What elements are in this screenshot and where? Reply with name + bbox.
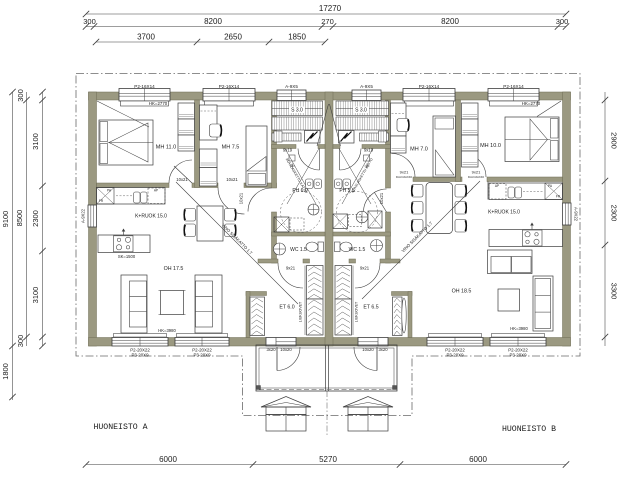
svg-text:WC 1.5: WC 1.5 <box>290 247 307 253</box>
svg-text:10x21: 10x21 <box>226 177 238 182</box>
svg-text:10x20: 10x20 <box>362 347 374 352</box>
svg-text:SK=1500: SK=1500 <box>118 254 136 259</box>
svg-text:P3-20X9: P3-20X9 <box>446 353 464 358</box>
svg-text:300: 300 <box>16 89 25 102</box>
svg-text:OH 17.5: OH 17.5 <box>164 266 184 272</box>
svg-text:MH 7.0: MH 7.0 <box>410 147 428 153</box>
svg-text:HK=3980: HK=3980 <box>510 326 528 331</box>
svg-text:8200: 8200 <box>204 17 222 26</box>
svg-text:P2-16X14: P2-16X14 <box>219 84 240 89</box>
svg-text:P3-20X9: P3-20X9 <box>509 353 527 358</box>
svg-text:S 3.0: S 3.0 <box>291 108 303 114</box>
svg-text:1850: 1850 <box>288 33 306 42</box>
svg-text:1800: 1800 <box>1 363 10 380</box>
svg-text:A-9X22: A-9X22 <box>574 207 579 222</box>
svg-text:KULKUAUKKO: KULKUAUKKO <box>468 176 484 179</box>
svg-text:P3-20X9: P3-20X9 <box>131 353 149 358</box>
svg-text:2900: 2900 <box>610 132 619 149</box>
svg-text:10x21: 10x21 <box>176 177 188 182</box>
svg-text:KULKUAUKKO: KULKUAUKKO <box>396 176 412 179</box>
svg-text:9x19: 9x19 <box>283 148 293 153</box>
svg-text:3x20: 3x20 <box>266 347 276 352</box>
svg-text:9x21: 9x21 <box>360 266 370 271</box>
svg-text:LIUKUOVET: LIUKUOVET <box>299 301 303 322</box>
svg-text:LIUKUOVET: LIUKUOVET <box>355 301 359 322</box>
svg-text:2650: 2650 <box>224 33 242 42</box>
svg-text:9x21: 9x21 <box>286 266 296 271</box>
svg-text:HK=2770: HK=2770 <box>522 101 541 106</box>
svg-text:A-9X22: A-9X22 <box>81 208 86 223</box>
svg-text:300: 300 <box>556 17 569 26</box>
svg-text:P2-16X14: P2-16X14 <box>134 84 155 89</box>
svg-text:P2-16X14: P2-16X14 <box>503 84 524 89</box>
svg-text:FR: FR <box>556 195 561 199</box>
svg-text:PH 5.5: PH 5.5 <box>339 188 355 194</box>
svg-text:3x20: 3x20 <box>378 347 388 352</box>
svg-text:2300: 2300 <box>610 205 619 222</box>
svg-text:P3-20X9: P3-20X9 <box>193 353 211 358</box>
svg-text:10x20: 10x20 <box>280 347 292 352</box>
svg-text:ET 6.5: ET 6.5 <box>363 305 378 311</box>
svg-text:WC 1.5: WC 1.5 <box>349 247 366 253</box>
svg-text:300: 300 <box>83 17 96 26</box>
svg-text:2300: 2300 <box>31 210 40 227</box>
svg-text:8500: 8500 <box>15 210 24 227</box>
svg-text:MH 7.5: MH 7.5 <box>222 145 240 151</box>
svg-text:6000: 6000 <box>469 455 487 464</box>
svg-text:AP: AP <box>495 184 499 188</box>
svg-text:9x21: 9x21 <box>472 170 481 175</box>
svg-text:6000: 6000 <box>159 455 177 464</box>
svg-text:10x21: 10x21 <box>239 192 244 204</box>
svg-text:3300: 3300 <box>610 283 619 300</box>
svg-text:PH 6.0: PH 6.0 <box>292 188 308 194</box>
svg-text:270: 270 <box>321 17 334 26</box>
svg-text:300: 300 <box>16 335 25 348</box>
svg-text:HUONEISTO B: HUONEISTO B <box>502 425 556 434</box>
svg-text:3700: 3700 <box>137 33 155 42</box>
svg-text:OH 18.5: OH 18.5 <box>452 289 472 295</box>
svg-text:5270: 5270 <box>319 455 337 464</box>
svg-text:K+RUOK 15.0: K+RUOK 15.0 <box>135 214 167 220</box>
svg-text:P2-16X14: P2-16X14 <box>419 84 440 89</box>
svg-text:3100: 3100 <box>31 133 40 150</box>
svg-text:9x21: 9x21 <box>400 170 409 175</box>
svg-text:K+RUOK 15.0: K+RUOK 15.0 <box>488 210 520 216</box>
svg-text:ET 6.0: ET 6.0 <box>279 305 294 311</box>
svg-text:FR: FR <box>99 199 104 203</box>
svg-text:9100: 9100 <box>1 211 10 228</box>
svg-text:17270: 17270 <box>319 4 342 13</box>
svg-text:AP: AP <box>154 189 158 193</box>
svg-text:3100: 3100 <box>31 287 40 304</box>
svg-text:8200: 8200 <box>441 17 459 26</box>
svg-text:MH 11.0: MH 11.0 <box>156 145 176 151</box>
svg-text:A-9X5: A-9X5 <box>285 84 298 89</box>
svg-text:MH 10.0: MH 10.0 <box>480 143 501 149</box>
svg-text:10x21: 10x21 <box>379 192 384 204</box>
svg-text:HUONEISTO A: HUONEISTO A <box>93 423 147 432</box>
svg-text:HK=3980: HK=3980 <box>158 328 176 333</box>
svg-text:A-9X5: A-9X5 <box>360 84 373 89</box>
svg-text:HK=2770: HK=2770 <box>149 101 168 106</box>
svg-text:S 3.0: S 3.0 <box>355 108 367 114</box>
